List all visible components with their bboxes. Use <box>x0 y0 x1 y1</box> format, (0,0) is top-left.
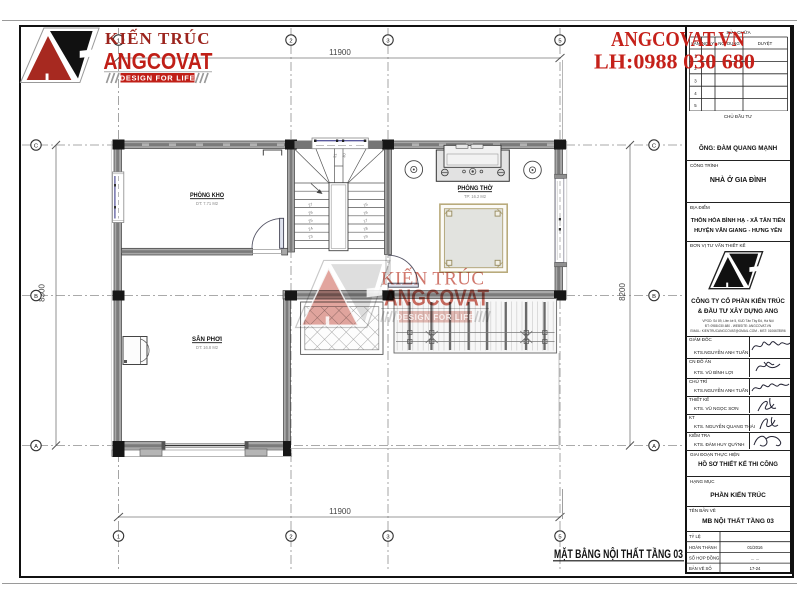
svg-text:11900: 11900 <box>329 507 351 516</box>
svg-text:ANGCOVAT: ANGCOVAT <box>384 285 489 311</box>
svg-text:27: 27 <box>308 201 315 207</box>
svg-text:15: 15 <box>363 201 370 207</box>
svg-text:C: C <box>652 143 656 149</box>
svg-text:16: 16 <box>363 209 370 215</box>
svg-text:HOÀN THÀNH: HOÀN THÀNH <box>689 545 717 550</box>
svg-text:2: 2 <box>289 534 292 540</box>
svg-text:SÂN PHƠI: SÂN PHƠI <box>192 334 222 343</box>
svg-text:24: 24 <box>308 225 315 231</box>
svg-text:BẢN VẼ SỐ: BẢN VẼ SỐ <box>689 566 712 571</box>
svg-text:3: 3 <box>386 534 389 540</box>
svg-text:PHÒNG KHO: PHÒNG KHO <box>190 190 224 199</box>
svg-text:TP: 16.2 M2: TP: 16.2 M2 <box>464 194 486 199</box>
svg-text:PHÒNG THỜ: PHÒNG THỜ <box>458 183 493 192</box>
svg-text:01/2016: 01/2016 <box>747 545 763 550</box>
svg-text:4: 4 <box>694 90 697 95</box>
svg-text:5: 5 <box>558 534 561 540</box>
svg-text:C: C <box>34 143 38 149</box>
svg-text:26: 26 <box>308 209 315 215</box>
svg-text:TỶ LỆ: TỶ LỆ <box>689 534 701 539</box>
svg-text:DESIGN FOR LIFE: DESIGN FOR LIFE <box>396 313 474 322</box>
svg-text:19: 19 <box>363 233 370 239</box>
svg-text:A: A <box>652 444 656 450</box>
svg-text:23: 23 <box>308 233 315 239</box>
svg-text:17: 17 <box>363 217 370 223</box>
svg-text:30: 30 <box>341 152 347 158</box>
svg-text:31: 31 <box>332 152 338 158</box>
svg-text:... ...: ... ... <box>751 556 759 561</box>
svg-text:18: 18 <box>363 225 370 231</box>
svg-text:DT: 16.8 M2: DT: 16.8 M2 <box>196 345 218 350</box>
svg-text:17-24: 17-24 <box>750 566 761 571</box>
svg-text:B: B <box>652 294 656 300</box>
svg-text:25: 25 <box>308 217 315 223</box>
svg-text:ANGCOVAT.VN: ANGCOVAT.VN <box>611 27 745 51</box>
svg-text:1: 1 <box>117 534 120 540</box>
svg-text:B: B <box>34 294 38 300</box>
svg-text:MẶT BẰNG NỘI THẤT TẦNG 03: MẶT BẰNG NỘI THẤT TẦNG 03 <box>554 548 683 561</box>
svg-text:SỐ HỢP ĐỒNG: SỐ HỢP ĐỒNG <box>689 556 719 561</box>
svg-text:A: A <box>34 444 38 450</box>
svg-text:LH:0988 030 680: LH:0988 030 680 <box>594 50 755 74</box>
svg-text:DT: 7.71 M2: DT: 7.71 M2 <box>196 201 218 206</box>
svg-text:8200: 8200 <box>618 283 627 301</box>
svg-text:5: 5 <box>694 103 697 108</box>
